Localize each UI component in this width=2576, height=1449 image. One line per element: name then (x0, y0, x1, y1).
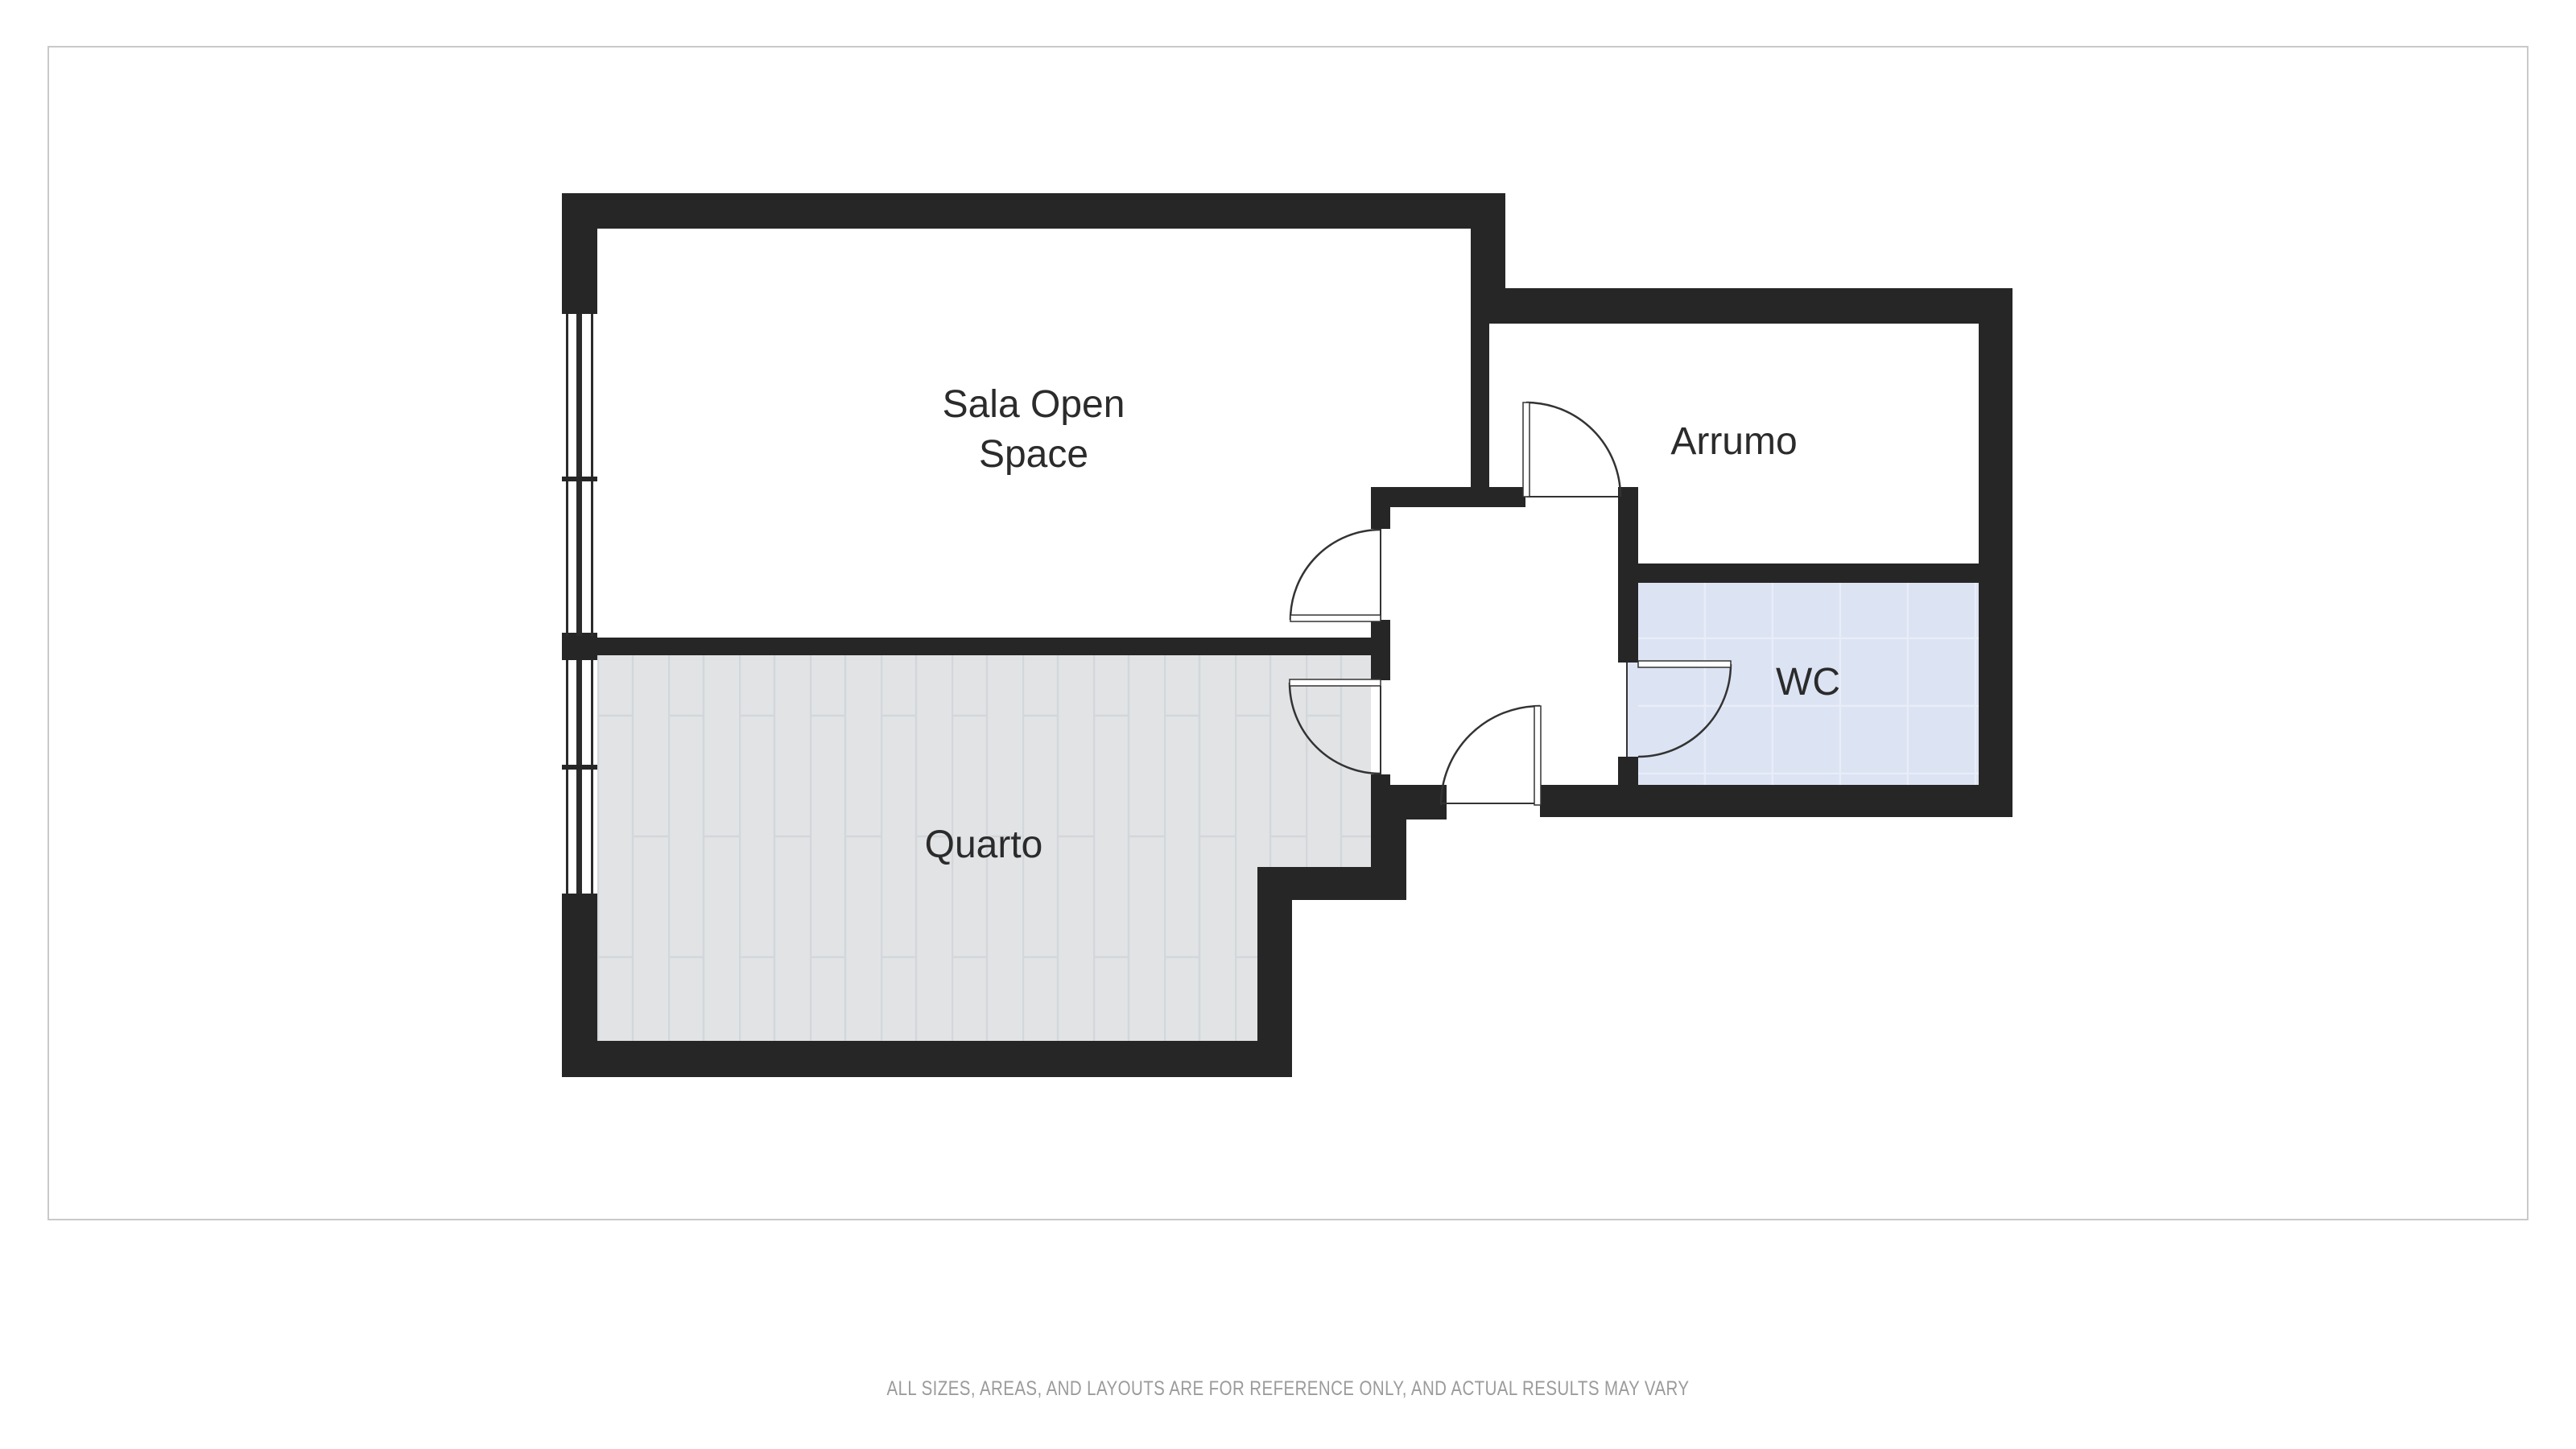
wc-door-leaf (1638, 661, 1731, 667)
arrumo-door-arc (1526, 402, 1620, 497)
window-segment-1 (566, 314, 593, 477)
wall-bottom-right (1540, 785, 2013, 817)
wall-divider-end-cap (562, 633, 597, 660)
wall-hall-left-block-b (1371, 620, 1390, 680)
wall-hall-left-block-a (1371, 487, 1390, 529)
wc-label: WC (1776, 661, 1840, 704)
wall-sala-arrumo-divider (1471, 324, 1489, 507)
wall-hall-left-block-c (1371, 774, 1390, 786)
arrumo-label: Arrumo (1670, 420, 1797, 463)
window-segment-3 (566, 660, 593, 765)
wall-left-lower (562, 898, 597, 1077)
sala-door-arc (1290, 530, 1381, 620)
window-cap-3 (562, 765, 597, 770)
wc-door-floor-sliver (1628, 663, 1638, 757)
floor-plan-page: Sala Open Space Arrumo WC Quarto ALL SIZ… (0, 0, 2576, 1449)
sala-label-line1: Sala Open (943, 383, 1125, 426)
wall-left-upper (562, 193, 597, 312)
wall-right-exterior (1979, 288, 2013, 817)
window-cap-2 (562, 477, 597, 481)
wall-arrumo-top (1471, 288, 2013, 324)
left-wall-windows (566, 314, 593, 894)
window-segment-2 (566, 481, 593, 636)
quarto-door-leaf (1290, 679, 1381, 686)
wall-sala-quarto-divider (562, 638, 1371, 655)
window-cap-4 (562, 894, 597, 898)
arrumo-door-leaf (1523, 402, 1529, 497)
disclaimer-text: ALL SIZES, AREAS, AND LAYOUTS ARE FOR RE… (887, 1377, 1690, 1399)
wall-wc-left-stub (1618, 757, 1638, 786)
entrance-door-arc (1441, 706, 1540, 805)
window-cap-1 (562, 309, 597, 314)
wall-quarto-bottom (562, 1041, 1292, 1077)
sala-door-leaf (1290, 615, 1381, 621)
sala-label-line2: Space (979, 433, 1088, 476)
wall-arrumo-wc-divider (1618, 563, 1980, 583)
wall-hall-top (1371, 487, 1525, 507)
entrance-door-leaf (1534, 706, 1541, 805)
quarto-label: Quarto (925, 824, 1043, 866)
wall-sala-top (562, 193, 1505, 229)
window-segment-4 (566, 770, 593, 894)
floor-plan-canvas: Sala Open Space Arrumo WC Quarto ALL SIZ… (0, 0, 2576, 1449)
